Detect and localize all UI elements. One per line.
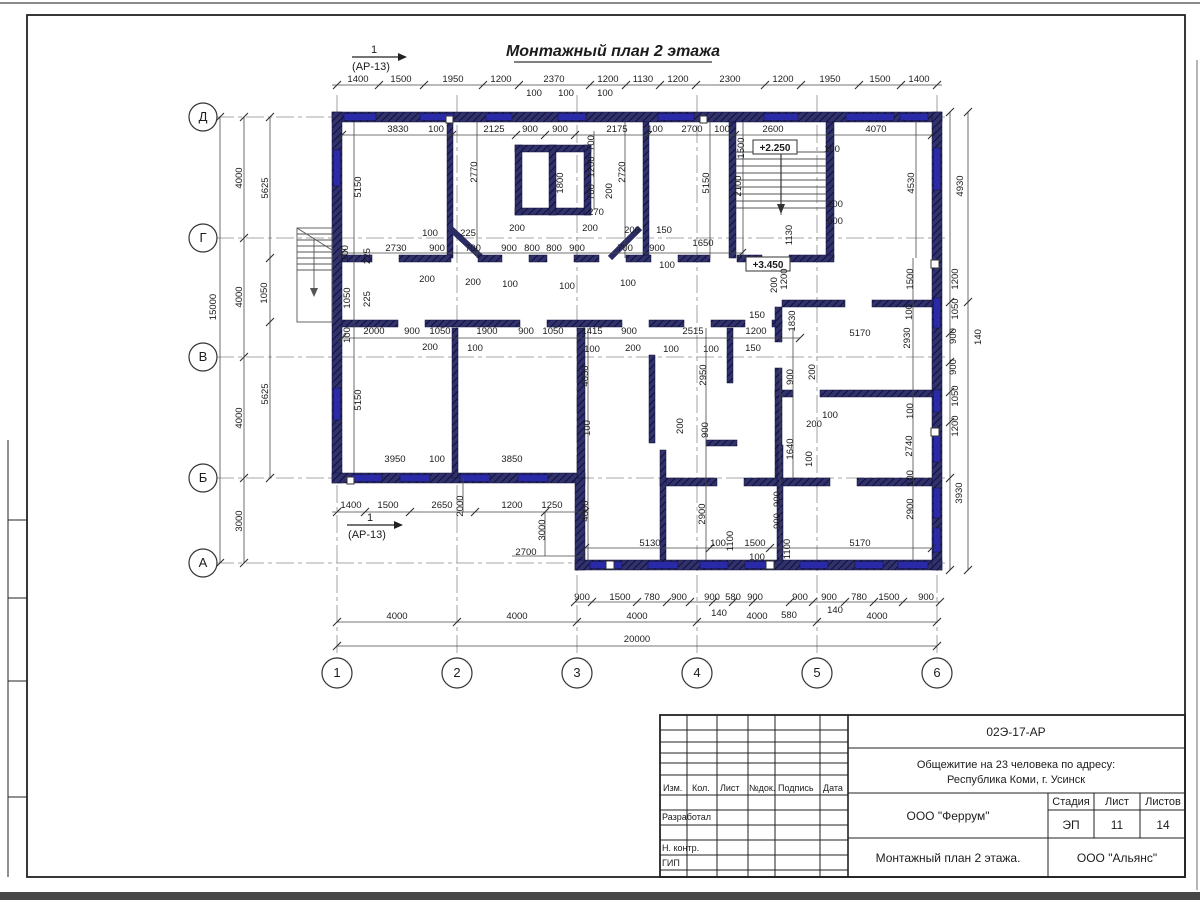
dim-label: 5170 [849, 328, 870, 339]
dim-label: 780 [851, 592, 867, 603]
dim-label: 100 [905, 470, 916, 486]
dim-label: 1500 [869, 74, 890, 85]
axis-bubble-col-2: 2 [442, 658, 472, 688]
dim-label: 225 [362, 248, 373, 264]
dim-label: 4000 [386, 611, 407, 622]
dim-label: 100 [428, 124, 444, 135]
dim-label: 2740 [904, 435, 915, 456]
dim-label: 1400 [908, 74, 929, 85]
dim-label: 1650 [692, 238, 713, 249]
dim-label: 900 [518, 326, 534, 337]
axis-label: 3 [573, 665, 580, 680]
dim-label: 100 [804, 451, 815, 467]
dim-label: 1500 [609, 592, 630, 603]
axis-label: 6 [933, 665, 940, 680]
dim-label: 2370 [543, 74, 564, 85]
dim-label: 100 [467, 343, 483, 354]
dim-label: 1050 [950, 298, 961, 319]
axis-bubble-row-v: В [189, 343, 217, 371]
dim-label: 900 [772, 513, 783, 529]
dim-label: 900 [827, 216, 843, 227]
stage-label: Стадия [1052, 796, 1090, 808]
dim-label: 1130 [633, 74, 653, 85]
dim-label: 1500 [736, 137, 747, 158]
dim-label: 100 [710, 538, 726, 549]
dim-label: 100 [822, 410, 838, 421]
dim-label: 900 [792, 592, 808, 603]
dim-label: 2175 [606, 124, 627, 135]
page-title: Монтажный план 2 этажа [506, 43, 720, 60]
dim-label: 150 [749, 310, 765, 321]
col-kol: Кол. [692, 783, 710, 793]
col-izm: Изм. [663, 783, 682, 793]
dim-label: 1130 [784, 225, 795, 245]
dim-label: 3930 [954, 482, 965, 503]
dim-label: 200 [604, 183, 615, 199]
dim-label: 4930 [955, 175, 966, 196]
dim-label: 2300 [719, 74, 740, 85]
dim-label: 1050 [259, 282, 270, 303]
dim-label: 1950 [819, 74, 840, 85]
dim-label: 200 [769, 277, 780, 293]
dim-label: 900 [704, 592, 720, 603]
row-nkontr: Н. контр. [662, 843, 699, 853]
col-podpis: Подпись [778, 783, 814, 793]
dim-label: 3850 [501, 454, 522, 465]
dim-label: 100 [582, 420, 593, 436]
dim-label: 100 [714, 124, 730, 135]
dim-label: 800 [546, 243, 562, 254]
dim-label: 1900 [476, 326, 497, 337]
dim-label: 200 [509, 223, 525, 234]
dim-label: 150 [745, 343, 761, 354]
dim-label: 140 [827, 605, 843, 616]
dim-label: 1800 [555, 172, 566, 193]
dim-label: 1050 [542, 326, 563, 337]
dim-label: 200 [465, 277, 481, 288]
dim-label: 100 [659, 260, 675, 271]
dim-label: 900 [747, 592, 763, 603]
dim-label: 200 [675, 418, 686, 434]
dim-label: 100 [558, 88, 574, 99]
dim-label: 900 [621, 326, 637, 337]
dim-label: 900 [948, 359, 959, 375]
drawing-name: Монтажный план 2 этажа. [876, 851, 1021, 865]
dim-label: 700 [586, 135, 597, 151]
dim-label: 4000 [234, 167, 245, 188]
dim-label: 900 [552, 124, 568, 135]
dim-label: 150 [656, 225, 672, 236]
dim-label: 1950 [442, 74, 463, 85]
dim-label: 900 [785, 369, 796, 385]
doc-number: 02Э-17-АР [986, 725, 1045, 739]
dim-label: 1500 [744, 538, 765, 549]
dim-label: 20000 [624, 634, 650, 645]
dim-label: 1050 [342, 287, 353, 308]
dim-label: 200 [582, 223, 598, 234]
dim-label: 200 [422, 342, 438, 353]
section-number: 1 [371, 44, 377, 56]
dim-label: 2650 [431, 500, 452, 511]
dim-label: 1200 [501, 500, 522, 511]
dim-label: 100 [663, 344, 679, 355]
axis-bubble-col-4: 4 [682, 658, 712, 688]
axis-label: Б [199, 470, 208, 485]
company-name: ООО "Альянс" [1077, 851, 1157, 865]
dim-label: 100 [422, 228, 438, 239]
col-list: Лист [720, 783, 740, 793]
developer-name: ООО "Феррум" [907, 809, 990, 823]
drawing-sheet: Д Г В Б А 1 2 3 4 5 6 140015001950120023… [0, 0, 1200, 900]
dim-label: 2125 [483, 124, 504, 135]
dim-label: 2720 [617, 161, 628, 182]
row-gip: ГИП [662, 858, 680, 868]
dim-label: 100 [620, 278, 636, 289]
dim-label: 1200 [490, 74, 511, 85]
dim-label: 4000 [234, 286, 245, 307]
col-ndok: №док. [749, 783, 775, 793]
dim-label: 2950 [698, 364, 709, 385]
drawing-title: Монтажный план 2 этажа [506, 43, 720, 62]
section-number: 1 [367, 512, 373, 524]
dim-label: 1500 [390, 74, 411, 85]
axis-label: Д [199, 109, 208, 124]
dim-label: 1200 [586, 156, 597, 177]
dim-label: 1640 [785, 438, 796, 459]
dim-label: 100 [502, 279, 518, 290]
dim-label: 900 [574, 592, 590, 603]
dim-label: 1200 [779, 268, 790, 289]
axis-label: Г [199, 230, 206, 245]
axis-bubble-row-d: Д [189, 103, 217, 131]
col-data: Дата [823, 783, 843, 793]
dim-label: 100 [429, 454, 445, 465]
dim-label: 200 [624, 225, 640, 236]
dim-label: 900 [649, 243, 665, 254]
dim-label: 225 [460, 228, 476, 239]
dim-label: 700 [617, 243, 633, 254]
dim-label: 4000 [746, 611, 767, 622]
axis-label: 4 [693, 665, 700, 680]
dim-label: 1100 [782, 539, 793, 559]
sheet-value: 11 [1111, 818, 1124, 832]
dim-label: 1415 [581, 326, 602, 337]
axis-label: 5 [813, 665, 820, 680]
dim-label: 5625 [260, 177, 271, 198]
dim-label: 15000 [208, 294, 219, 320]
dim-label: 700 [586, 184, 597, 200]
dim-label: 1830 [787, 310, 798, 331]
dim-label: 4000 [506, 611, 527, 622]
dim-label: 3830 [387, 124, 408, 135]
dim-label: 100 [597, 88, 613, 99]
dim-label: 900 [569, 243, 585, 254]
dim-label: 2700 [681, 124, 702, 135]
dim-label: 4000 [866, 611, 887, 622]
page-right-edge [1196, 60, 1198, 890]
dim-label: 2730 [385, 243, 406, 254]
dim-label: 4000 [580, 500, 591, 521]
dim-label: 1400 [347, 74, 368, 85]
dim-label: 200 [419, 274, 435, 285]
dim-label: 4530 [906, 172, 917, 193]
sheet-label: Лист [1105, 796, 1129, 808]
dim-label: 900 [501, 243, 517, 254]
dim-label: 780 [644, 592, 660, 603]
dim-label: 5130 [639, 538, 660, 549]
dim-label: 200 [806, 419, 822, 430]
project-line1: Общежитие на 23 человека по адресу: [917, 759, 1115, 771]
dim-label: 1250 [541, 500, 562, 511]
dim-label: 270 [588, 207, 604, 218]
dim-label: 100 [905, 403, 916, 419]
dim-label: 1500 [905, 268, 916, 289]
section-ref: (АР-13) [352, 61, 390, 73]
dim-label: 3000 [537, 519, 548, 540]
project-line2: Республика Коми, г. Усинск [947, 774, 1085, 786]
dim-label: 1200 [950, 415, 961, 436]
dim-label: 200 [625, 343, 641, 354]
axis-bubble-col-1: 1 [322, 658, 352, 688]
dim-label: 2900 [697, 503, 708, 524]
axis-bubble-row-b: Б [189, 464, 217, 492]
dim-label: 100 [703, 344, 719, 355]
row-razrabotal: Разработал [662, 812, 711, 822]
dim-label: 1050 [950, 385, 961, 406]
axis-bubble-col-6: 6 [922, 658, 952, 688]
dim-label: 900 [772, 491, 783, 507]
dim-label: 2515 [682, 326, 703, 337]
dim-label: 1200 [597, 74, 618, 85]
dim-label: 225 [362, 291, 373, 307]
sheets-value: 14 [1156, 818, 1170, 832]
dim-label: 1100 [725, 531, 736, 551]
dim-label: 4070 [865, 124, 886, 135]
dim-label: 5170 [849, 538, 870, 549]
axis-bubble-col-5: 5 [802, 658, 832, 688]
dim-label: 1400 [340, 500, 361, 511]
dim-label: 580 [725, 592, 741, 603]
dim-label: 140 [711, 608, 727, 619]
dim-label: 2000 [363, 326, 384, 337]
dim-label: 900 [522, 124, 538, 135]
dim-label: 580 [781, 610, 797, 621]
dim-label: 1200 [772, 74, 793, 85]
dim-label: 100 [526, 88, 542, 99]
dim-label: 100 [340, 245, 351, 261]
dim-label: 100 [904, 304, 915, 320]
dim-label: 900 [821, 592, 837, 603]
axis-label: А [199, 555, 208, 570]
dim-label: 100 [749, 552, 765, 563]
dim-label: 5150 [353, 176, 364, 197]
dim-label: 2000 [455, 495, 466, 516]
axis-label: В [199, 349, 208, 364]
dim-label: 1200 [745, 326, 766, 337]
dim-label: 5625 [260, 383, 271, 404]
sheets-label: Листов [1145, 796, 1181, 808]
section-ref: (АР-13) [348, 529, 386, 541]
dim-label: 900 [918, 592, 934, 603]
dim-label: 200 [827, 199, 843, 210]
dim-label: 1050 [429, 326, 450, 337]
dim-label: 900 [700, 422, 711, 438]
dim-label: 100 [584, 344, 600, 355]
axis-bubble-col-3: 3 [562, 658, 592, 688]
axis-bubble-row-g: Г [189, 224, 217, 252]
dim-label: 1200 [950, 268, 961, 289]
dim-label: 900 [404, 326, 420, 337]
dim-label: +2.250 [760, 143, 791, 154]
stage-value: ЭП [1062, 818, 1079, 832]
dim-label: 140 [973, 329, 984, 345]
dim-label: 2900 [905, 498, 916, 519]
dim-label: 200 [807, 364, 818, 380]
dim-label: 3950 [384, 454, 405, 465]
dim-label: 800 [524, 243, 540, 254]
dim-label: 2100 [733, 175, 744, 196]
axis-bubble-row-a: А [189, 549, 217, 577]
page-bottom-edge [0, 892, 1200, 900]
dim-label: 1500 [878, 592, 899, 603]
axis-label: 2 [453, 665, 460, 680]
dim-label: 100 [559, 281, 575, 292]
dim-label: 5150 [701, 172, 712, 193]
dim-label: 100 [824, 144, 840, 155]
page-top-edge [0, 2, 1200, 4]
dim-label: 2600 [762, 124, 783, 135]
dim-label: 100 [342, 327, 353, 343]
axis-label: 1 [333, 665, 340, 680]
dim-label: 1500 [377, 500, 398, 511]
dim-label: 2700 [515, 547, 536, 558]
dim-label: 700 [465, 243, 481, 254]
dim-label: 900 [948, 328, 959, 344]
dim-label: 100 [647, 124, 663, 135]
dim-label: 5150 [353, 389, 364, 410]
dim-label: 2770 [469, 161, 480, 182]
dim-label: 900 [429, 243, 445, 254]
dim-label: 1200 [667, 74, 688, 85]
dim-label: 4000 [626, 611, 647, 622]
dim-label: 4000 [234, 407, 245, 428]
dim-label: 3000 [234, 510, 245, 531]
dim-label: 2930 [902, 327, 913, 348]
dim-label: +3.450 [753, 260, 784, 271]
dim-label: 900 [671, 592, 687, 603]
dim-label: 4050 [580, 365, 591, 386]
